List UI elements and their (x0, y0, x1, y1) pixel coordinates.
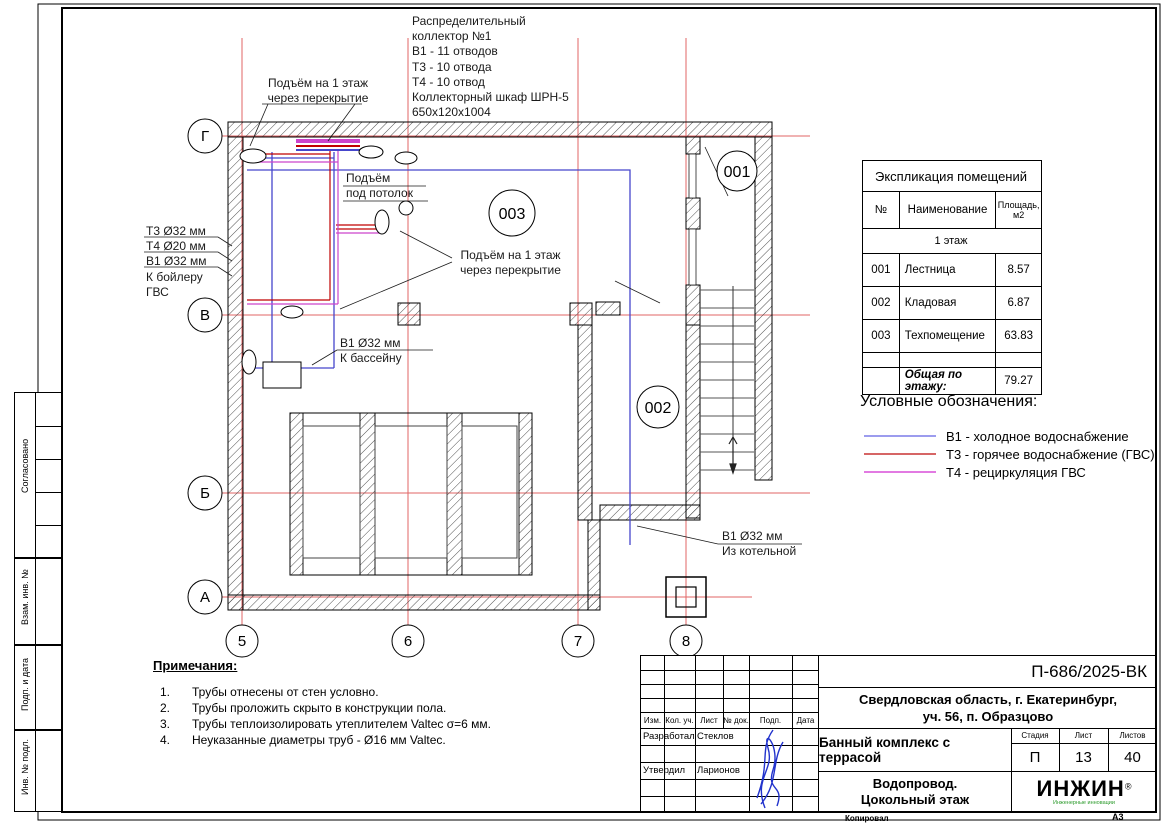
legend-label: В1 - холодное водоснабжение (946, 429, 1129, 444)
pipe-label-t3: Т3 Ø32 мм (146, 224, 206, 239)
drawing-sheet: Г В Б А 5 6 7 8 001 002 003 Распределите… (0, 0, 1166, 824)
table-row: 003 Техпомещение 63.83 (863, 319, 1041, 352)
pipes-cold-water (247, 152, 630, 545)
legend-label: Т4 - рециркуляция ГВС (946, 465, 1086, 480)
explication-col-name: Наименование (899, 192, 995, 228)
room-number-003: 003 (499, 206, 526, 223)
room-id: 002 (863, 287, 899, 319)
side-stamp-approved: Согласовано (14, 392, 62, 558)
explication-col-area: Площадь, м2 (995, 192, 1041, 228)
stairs (700, 286, 754, 472)
room-name: Техпомещение (899, 320, 995, 352)
axis-label-row-b: Б (200, 485, 210, 502)
room-name: Лестница (899, 254, 995, 286)
room-number-001: 001 (724, 164, 751, 181)
logo-registered-icon: ® (1125, 781, 1132, 791)
notes-title: Примечания: (153, 658, 237, 673)
side-stamp-label: Согласовано (20, 447, 30, 493)
tb-role-developed: Разработал (641, 728, 695, 745)
sheets-label: Листов (1108, 728, 1157, 743)
to-pool-label: В1 Ø32 мм К бассейну (340, 336, 402, 365)
note-item: 3. Трубы теплоизолировать утеплителем Va… (160, 716, 491, 732)
explication-col-no: № (863, 192, 899, 228)
note-item: 2. Трубы проложить скрыто в конструкции … (160, 700, 491, 716)
table-row: 002 Кладовая 6.87 (863, 286, 1041, 319)
table-row-total: Общая по этажу: 79.27 (863, 367, 1041, 394)
stair-direction-arrow (729, 437, 737, 473)
pool (290, 413, 532, 575)
axis-label-col-6: 6 (404, 633, 412, 650)
note-number: 3. (160, 716, 192, 732)
legend-swatch-t4 (864, 469, 936, 475)
tb-col-izm: Изм. (641, 712, 664, 728)
axis-label-row-a: А (200, 589, 210, 606)
title-block-right: П-686/2025-ВК Свердловская область, г. Е… (819, 656, 1157, 813)
tb-role-approved: Утвердил (641, 762, 695, 779)
room-area: 63.83 (995, 320, 1041, 352)
sheets-total: 40 (1108, 743, 1157, 771)
room-explication-table: Экспликация помещений № Наименование Пло… (862, 160, 1042, 395)
room-id: 001 (863, 254, 899, 286)
total-value: 79.27 (995, 368, 1041, 394)
project-name: Банный комплекс с террасой (819, 728, 1011, 771)
document-number: П-686/2025-ВК (819, 656, 1157, 687)
legend-label: Т3 - горячее водоснабжение (ГВС) (946, 447, 1155, 462)
table-row: 001 Лестница 8.57 (863, 253, 1041, 286)
pipe-label-t4: Т4 Ø20 мм (146, 239, 206, 254)
note-number: 1. (160, 684, 192, 700)
copied-label: Копировал (845, 814, 889, 823)
room-id: 003 (863, 320, 899, 352)
axis-label-row-g: Г (201, 128, 209, 145)
from-boiler-room-label: В1 Ø32 мм Из котельной (722, 529, 796, 558)
note-text: Трубы проложить скрыто в конструкции пол… (192, 700, 446, 716)
note-text: Трубы теплоизолировать утеплителем Valte… (192, 716, 491, 732)
total-label: Общая по этажу: (899, 368, 995, 394)
room-area: 8.57 (995, 254, 1041, 286)
room-number-002: 002 (645, 400, 672, 417)
table-row-empty (863, 352, 1041, 367)
rise-first-floor-label-mid: Подъём на 1 этаж через перекрытие (448, 248, 573, 277)
sheet-title: Водопровод. Цокольный этаж (819, 771, 1011, 813)
side-stamp-label: Инв. № подл. (20, 749, 30, 795)
tb-col-kol: Кол. уч. (664, 712, 695, 728)
note-number: 4. (160, 732, 192, 748)
legend-swatch-b1 (864, 433, 936, 439)
stage-value: П (1011, 743, 1059, 771)
legend-title: Условные обозначения: (860, 393, 1037, 411)
axis-label-col-5: 5 (238, 633, 246, 650)
note-number: 2. (160, 700, 192, 716)
sheet-label: Лист (1059, 728, 1108, 743)
note-text: Трубы отнесены от стен условно. (192, 684, 379, 700)
room-area: 6.87 (995, 287, 1041, 319)
note-text: Неуказанные диаметры труб - Ø16 мм Valte… (192, 732, 446, 748)
room-name: Кладовая (899, 287, 995, 319)
axis-label-col-7: 7 (574, 633, 582, 650)
legend-item-t3: Т3 - горячее водоснабжение (ГВС) (864, 446, 1155, 462)
axis-label-col-8: 8 (682, 633, 690, 650)
to-boiler-label: К бойлеру ГВС (146, 270, 203, 299)
axis-label-row-v: В (200, 307, 210, 324)
legend-swatch-t3 (864, 451, 936, 457)
notes-list: 1. Трубы отнесены от стен условно. 2. Тр… (160, 684, 491, 748)
collector-note: Распределительный коллектор №1 В1 - 11 о… (412, 14, 597, 120)
signature-scribble (735, 712, 805, 816)
stage-label: Стадия (1011, 728, 1059, 743)
side-stamp-inv: Инв. № подл. (14, 730, 62, 812)
logo-subtitle: Инженерные инновации (1053, 801, 1115, 807)
note-item: 4. Неуказанные диаметры труб - Ø16 мм Va… (160, 732, 491, 748)
tb-col-list: Лист (695, 712, 723, 728)
rise-first-floor-label-top: Подъём на 1 этаж через перекрытие (258, 76, 378, 105)
legend-item-t4: Т4 - рециркуляция ГВС (864, 464, 1086, 480)
explication-title: Экспликация помещений (863, 161, 1039, 191)
legend-item-b1: В1 - холодное водоснабжение (864, 428, 1129, 444)
side-stamp-vzam: Взам. инв. № (14, 558, 62, 645)
project-location: Свердловская область, г. Екатеринбург, у… (819, 687, 1157, 728)
logo-text: ИНЖИН (1037, 776, 1125, 801)
format-label: А3 (1112, 812, 1124, 822)
rise-under-ceiling-label: Подъём под потолок (346, 171, 413, 200)
side-stamp-podp: Подп. и дата (14, 645, 62, 730)
sheet-number: 13 (1059, 743, 1108, 771)
side-stamp-label: Подп. и дата (20, 665, 30, 711)
title-block: Изм. Кол. уч. Лист № док. Подп. Дата Раз… (640, 655, 1156, 812)
company-logo: ИНЖИН® Инженерные инновации (1011, 771, 1157, 813)
side-stamp-label: Взам. инв. № (20, 579, 30, 625)
pipe-label-b1: В1 Ø32 мм (146, 254, 207, 269)
explication-floor-header: 1 этаж (863, 229, 1039, 253)
note-item: 1. Трубы отнесены от стен условно. (160, 684, 491, 700)
